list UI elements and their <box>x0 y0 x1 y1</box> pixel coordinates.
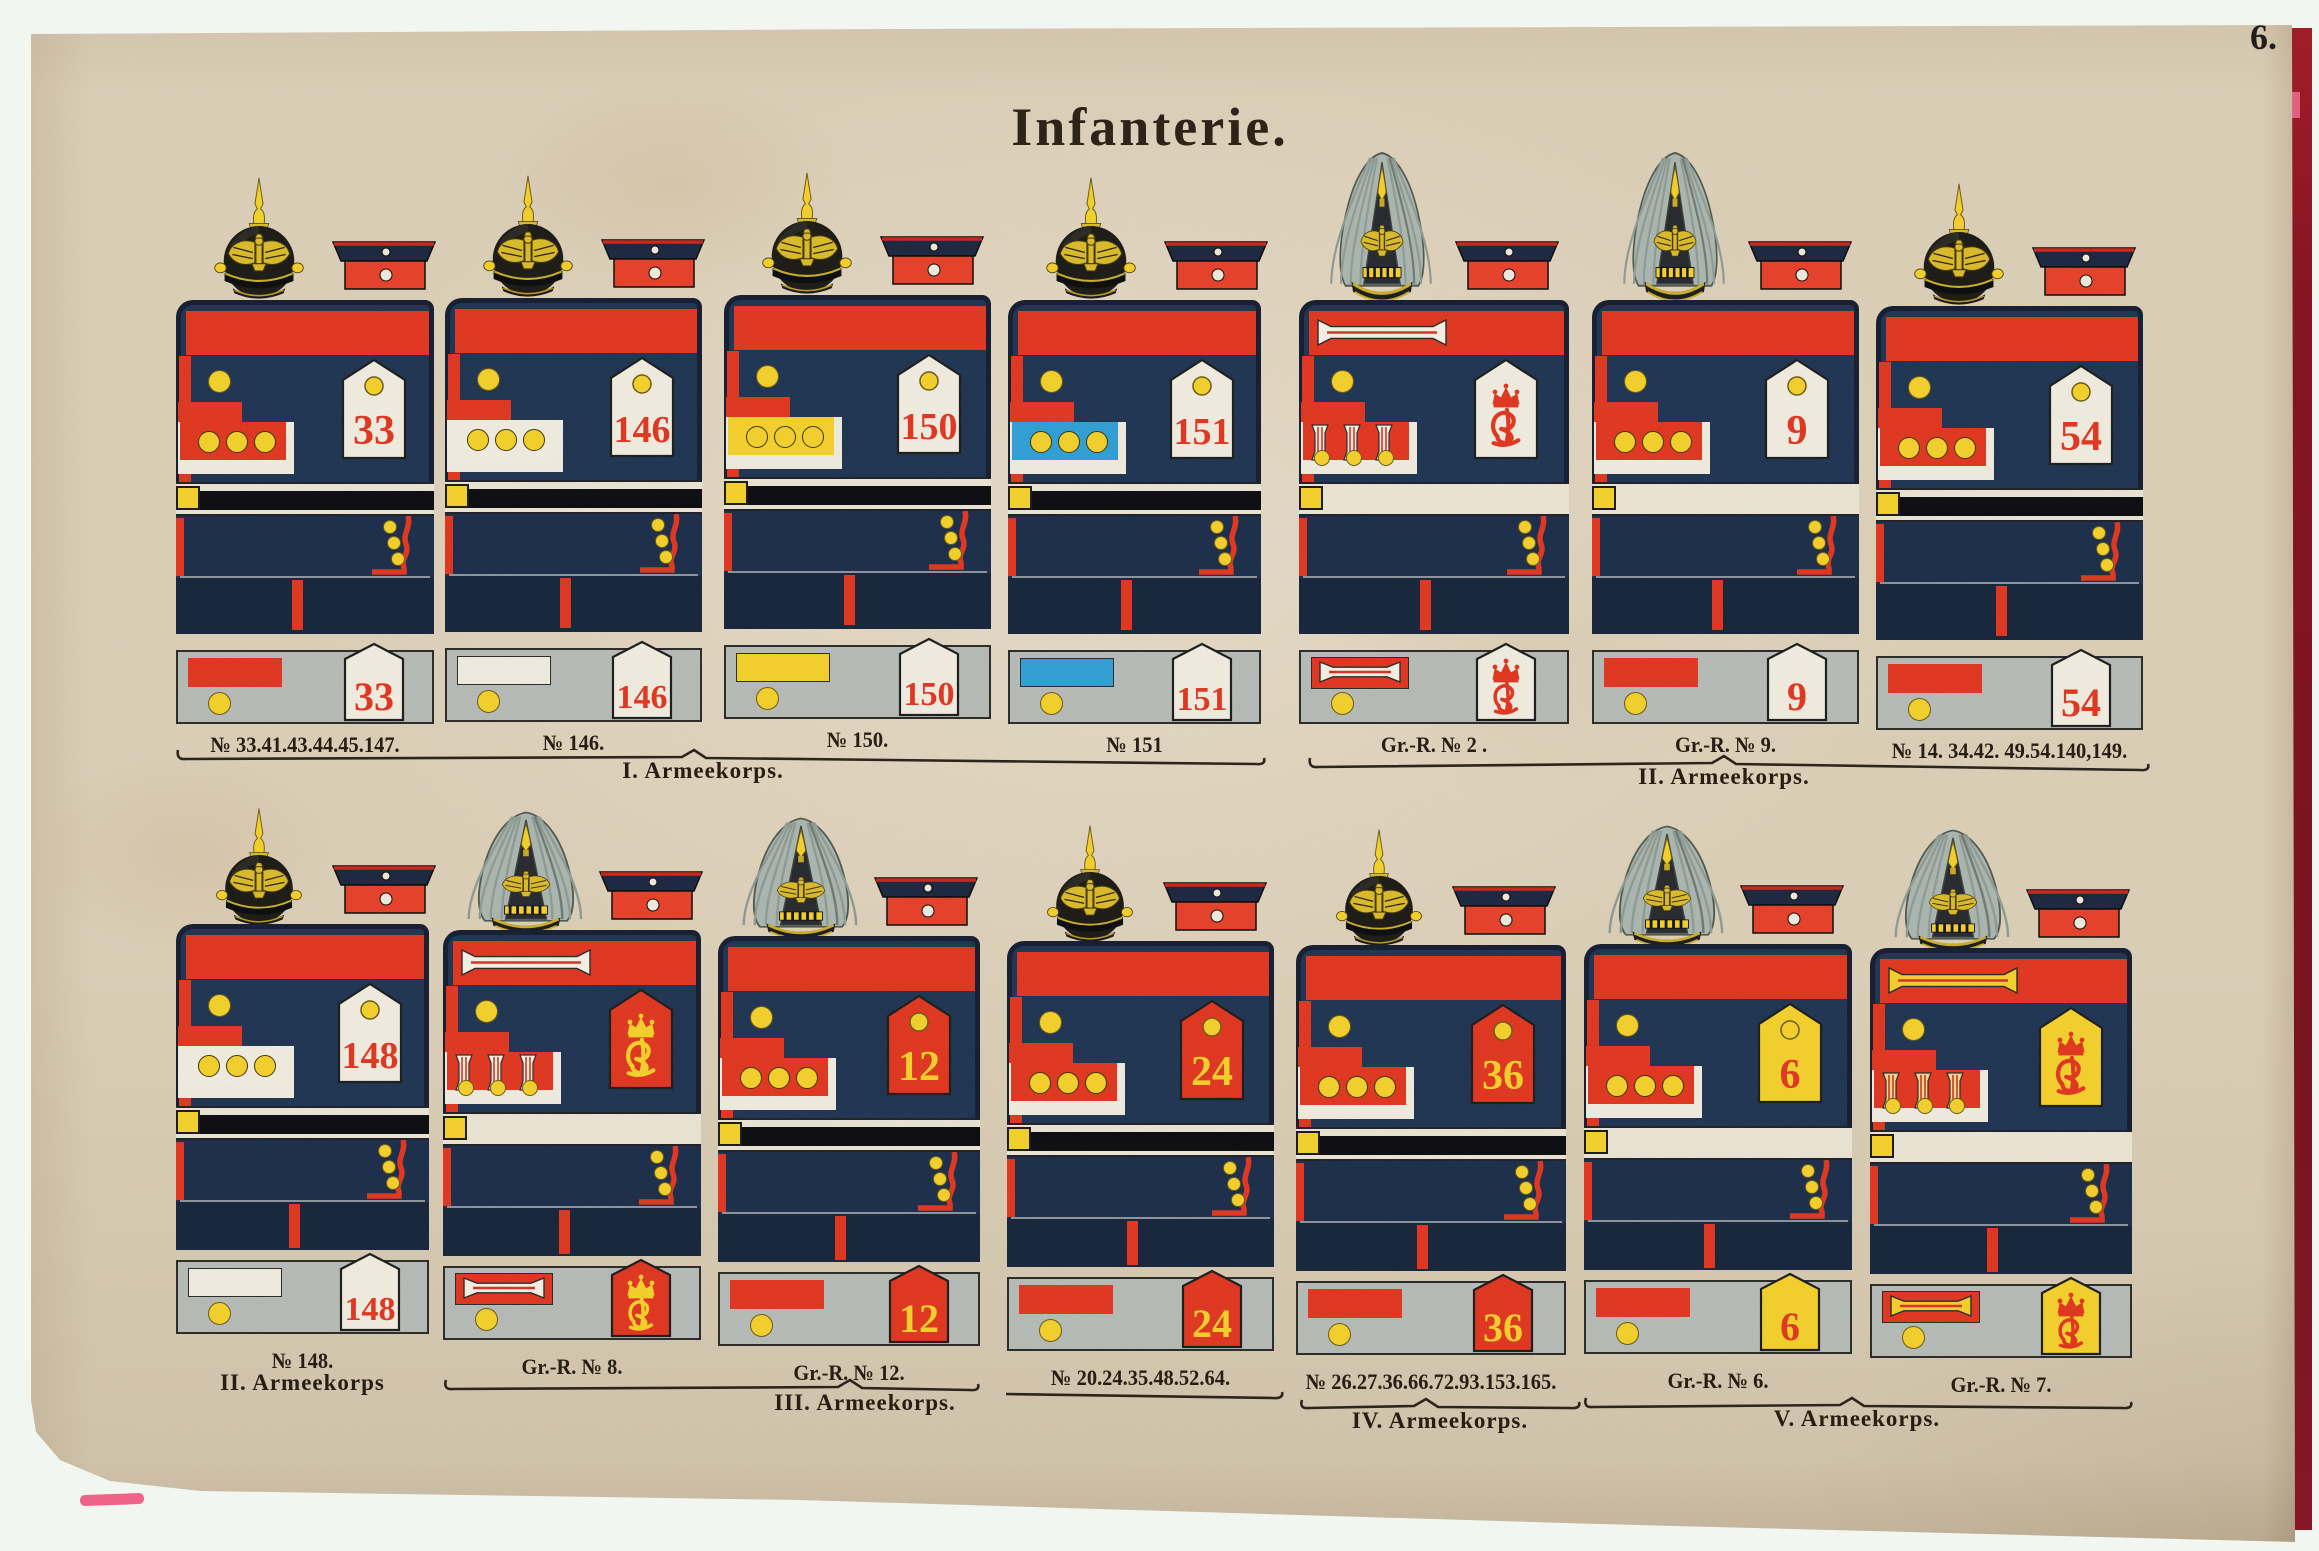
svg-text:54: 54 <box>2061 680 2101 725</box>
svg-text:150: 150 <box>901 406 958 448</box>
svg-text:36: 36 <box>1483 1305 1523 1350</box>
svg-text:24: 24 <box>1191 1049 1233 1095</box>
svg-text:148: 148 <box>345 1291 396 1328</box>
svg-text:33: 33 <box>353 408 395 454</box>
svg-text:36: 36 <box>1482 1053 1524 1099</box>
svg-text:12: 12 <box>898 1044 940 1090</box>
svg-text:150: 150 <box>904 676 955 713</box>
svg-text:12: 12 <box>899 1296 939 1341</box>
svg-text:146: 146 <box>614 409 671 451</box>
svg-text:33: 33 <box>354 674 394 719</box>
svg-text:24: 24 <box>1192 1301 1232 1346</box>
svg-text:6: 6 <box>1780 1052 1801 1098</box>
svg-text:146: 146 <box>617 679 668 716</box>
svg-text:9: 9 <box>1787 408 1808 454</box>
svg-text:151: 151 <box>1177 681 1228 718</box>
svg-text:6: 6 <box>1780 1304 1800 1349</box>
svg-text:148: 148 <box>342 1035 399 1077</box>
svg-text:151: 151 <box>1174 411 1231 453</box>
svg-text:9: 9 <box>1787 674 1807 719</box>
svg-text:54: 54 <box>2060 414 2102 460</box>
